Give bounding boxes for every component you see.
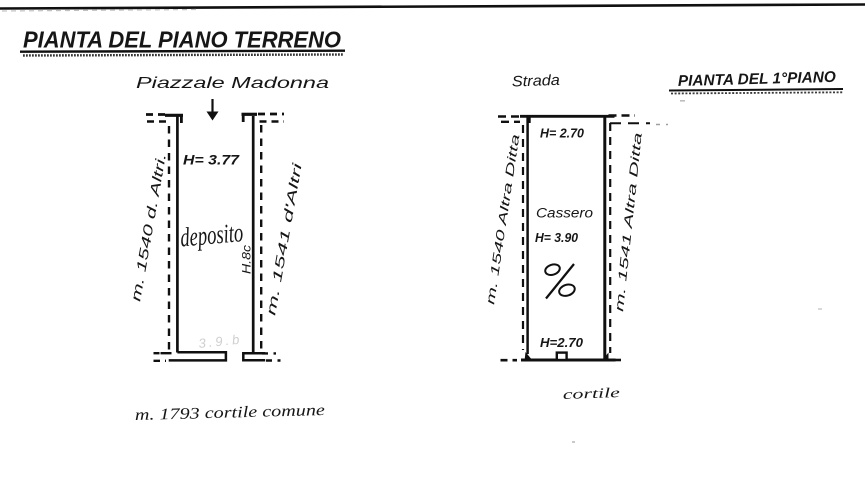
svg-text:PIANTA DEL PIANO TERRENO: PIANTA DEL PIANO TERRENO	[23, 27, 341, 53]
svg-text:H= 3.90: H= 3.90	[535, 231, 578, 245]
svg-text:Strada: Strada	[512, 72, 561, 91]
svg-text:Cassero: Cassero	[536, 206, 594, 221]
svg-text:deposito: deposito	[179, 217, 244, 252]
svg-text:cortile: cortile	[563, 386, 620, 403]
svg-text:m. 1540 Altra Ditta: m. 1540 Altra Ditta	[483, 133, 522, 306]
svg-text:H= 2.70: H= 2.70	[540, 127, 584, 141]
svg-text:H= 3.77: H= 3.77	[183, 153, 241, 168]
svg-text:H.8c: H.8c	[242, 245, 254, 274]
svg-text:3.9.b: 3.9.b	[198, 331, 243, 351]
svg-text:m. 1541 d'Altri: m. 1541 d'Altri	[263, 160, 305, 316]
svg-text:m. 1541 Altra Ditta: m. 1541 Altra Ditta	[612, 131, 645, 312]
svg-text:H=2.70: H=2.70	[540, 336, 583, 350]
svg-text:m. 1793 cortile comune: m. 1793 cortile comune	[135, 402, 325, 424]
svg-text:PIANTA DEL 1°PIANO: PIANTA DEL 1°PIANO	[678, 69, 836, 90]
svg-text:m. 1540 d. Altri.: m. 1540 d. Altri.	[128, 152, 169, 302]
svg-text:Piazzale Madonna: Piazzale Madonna	[136, 75, 329, 92]
